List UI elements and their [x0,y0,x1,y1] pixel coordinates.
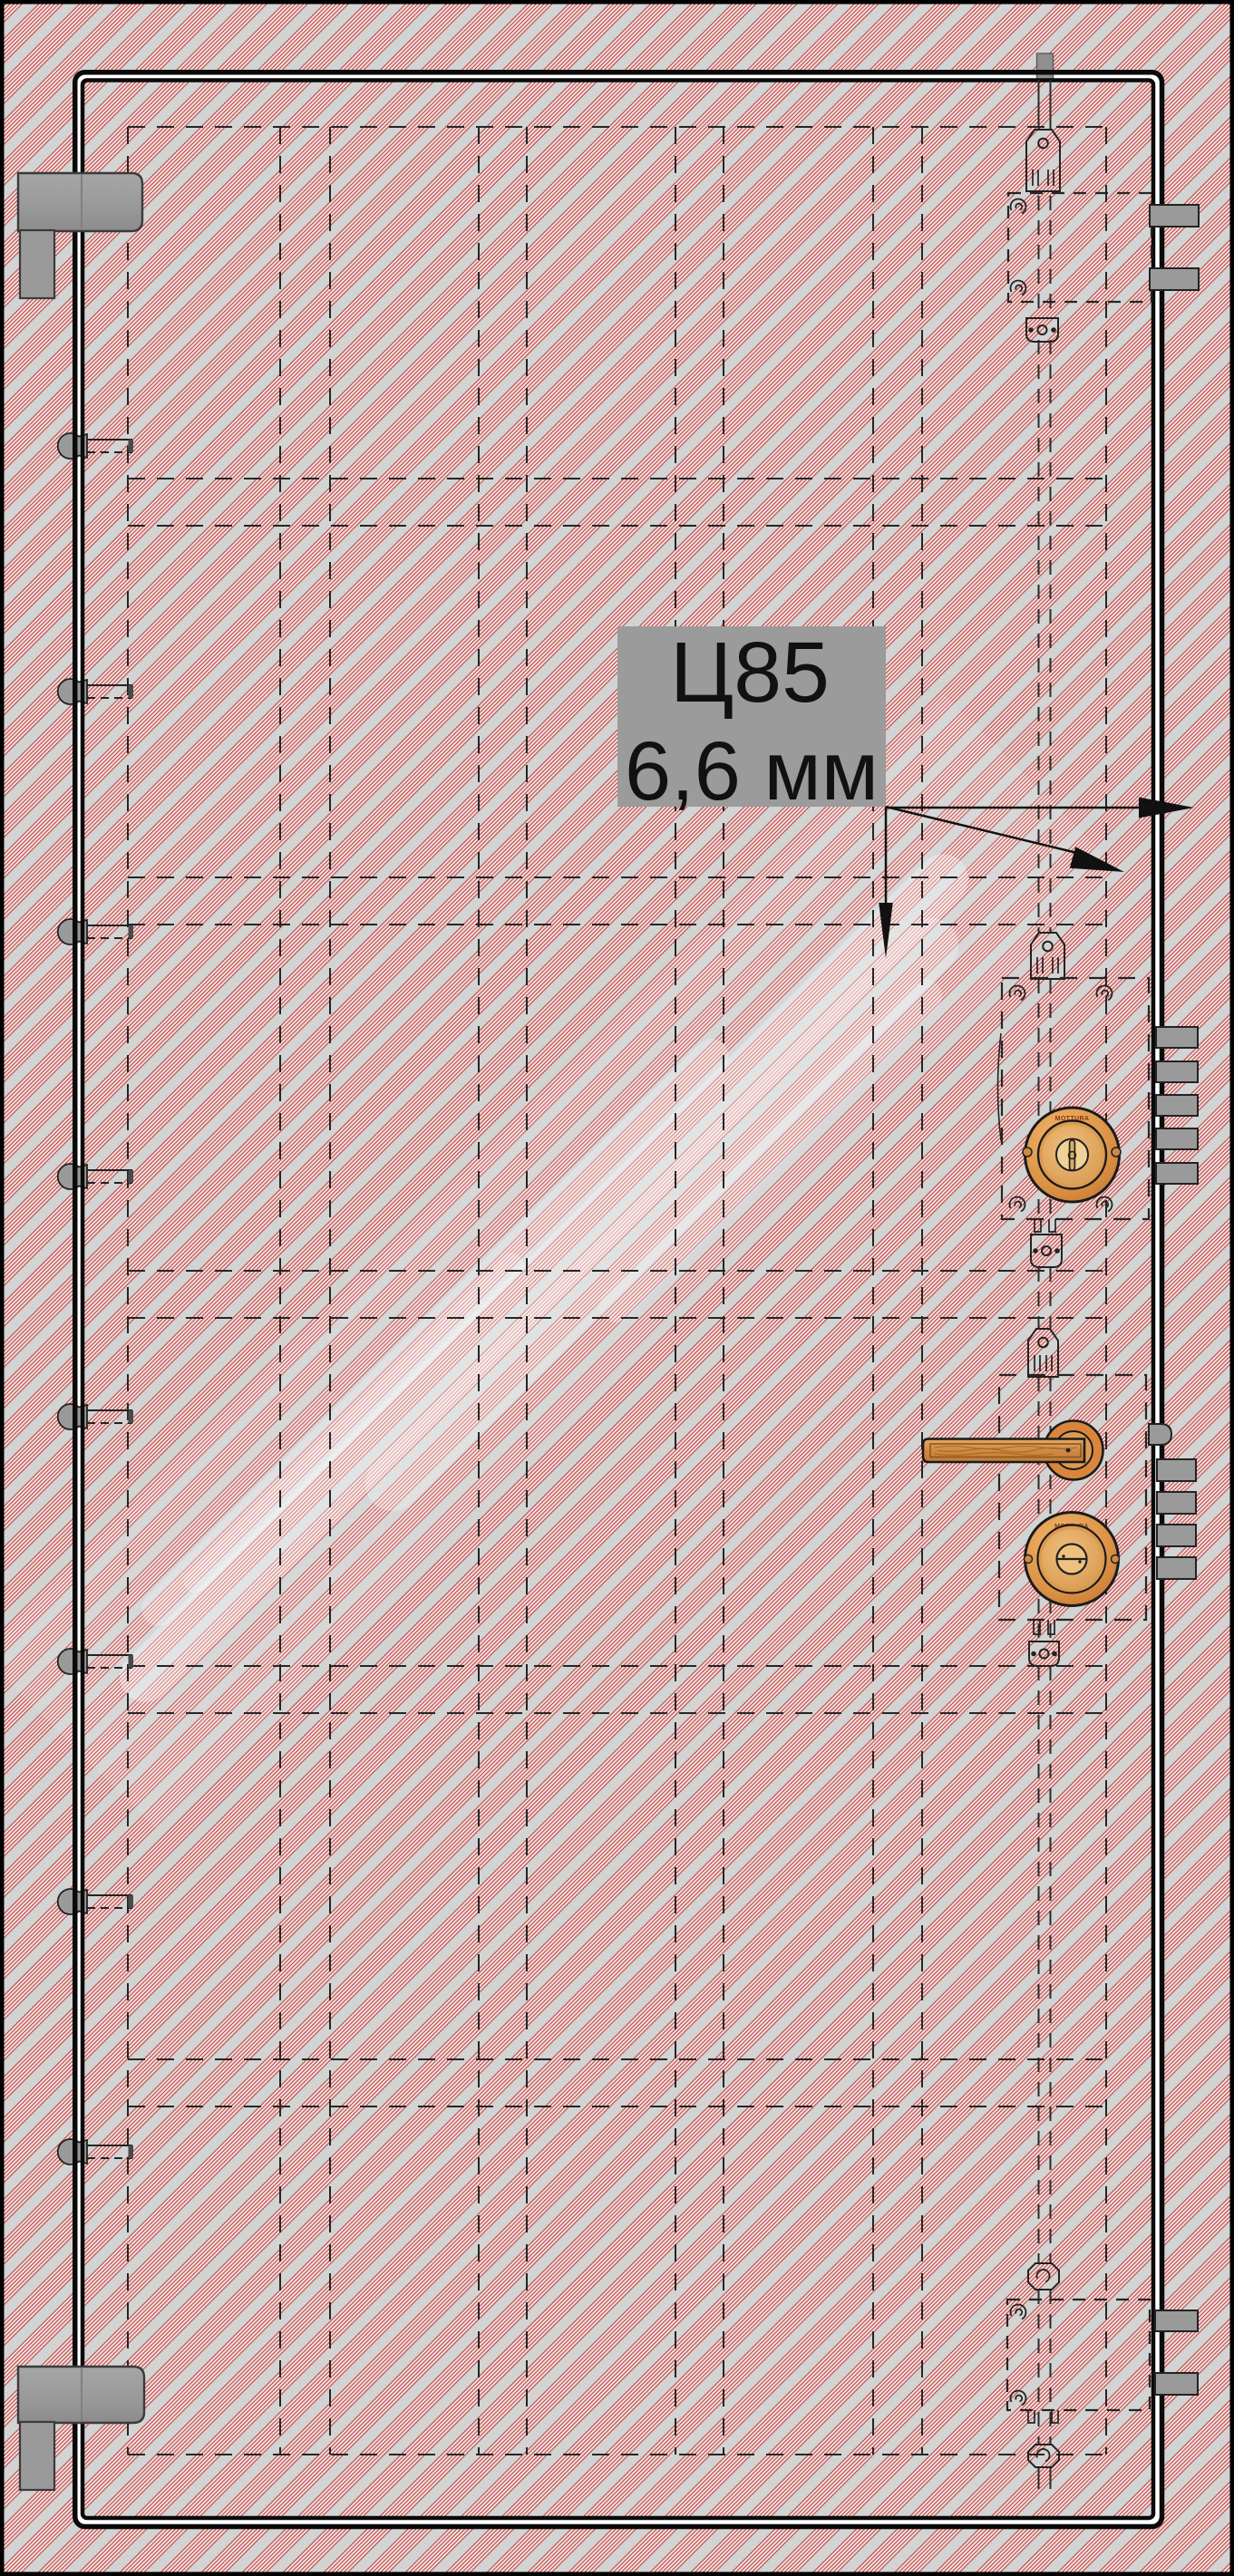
svg-text:Ц85: Ц85 [670,625,830,721]
svg-text:6,6 мм: 6,6 мм [625,725,879,818]
